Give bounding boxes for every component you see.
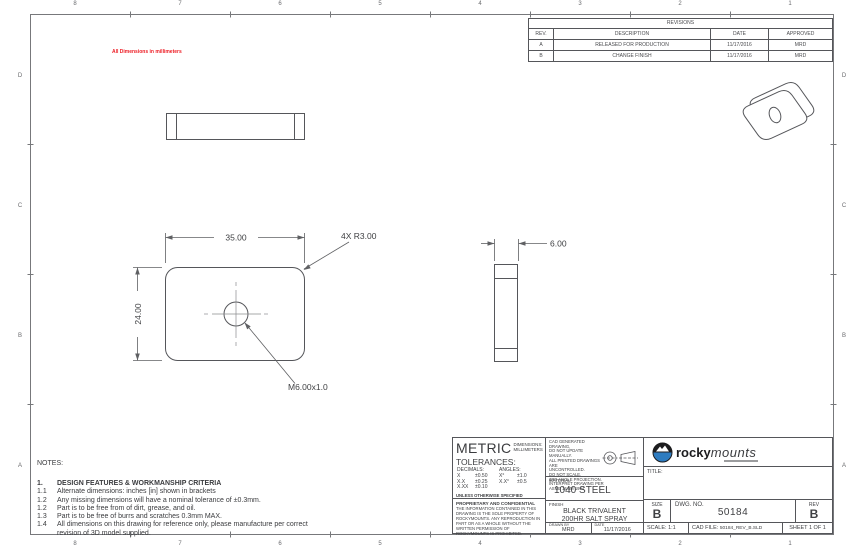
drawn-block: DRAWN BY MRD DATE 11/17/2016 [546,523,644,534]
dim-thickness: 6.00 [550,239,567,249]
top-view [167,114,305,140]
note-text: Part is to be free from of dirt, grease,… [57,505,196,513]
zone-col-label: 2 [670,541,690,551]
notes-label: NOTES: [37,460,309,467]
dimensions-units: MILLIMETERS [513,447,542,452]
revisions-header-approved: APPROVED [769,29,832,39]
tol-val: ±0.10 [475,485,499,491]
dimension-arrowheads [135,235,525,360]
third-angle-projection-icon [602,449,640,467]
dim-height: 24.00 [133,303,143,325]
note-item: 1.2 Any missing dimensions will have a n… [37,497,309,505]
revision-row: B CHANGE FINISH 11/17/2016 MRD [529,51,832,61]
notes-block: NOTES: 1. DESIGN FEATURES & WORKMANSHIP … [37,460,309,538]
revisions-title: REVISIONS [529,19,832,29]
title-label: TITLE: [644,467,832,475]
zone-row-label: C [837,203,851,213]
revision-date: 11/17/2016 [711,51,769,61]
tolerances-footnote: UNLESS OTHERWISE SPECIFIED [453,493,545,498]
revision-rev: A [529,40,554,50]
zone-row-label: D [837,73,851,83]
tol-val: ±0.5 [517,480,539,486]
zone-col-label: 8 [65,541,85,551]
revision-row: A RELEASED FOR PRODUCTION 11/17/2016 MRD [529,40,832,51]
note-item: 1.3 Part is to be free of burrs and scra… [37,513,309,521]
zone-row-label: C [13,203,27,213]
zone-col-label: 4 [470,541,490,551]
material-value: 1040 STEEL [546,483,643,496]
revision-approved: MRD [769,40,832,50]
note-number: 1.1 [37,488,57,496]
scale-value: SCALE: 1:1 [647,525,676,531]
proprietary-body: THE INFORMATION CONTAINED IN THIS DRAWIN… [453,507,545,536]
cad-file-value: 50184_REV_B.SLD [720,526,762,531]
zone-col-label: 6 [270,1,290,11]
zone-col-label: 5 [370,541,390,551]
zone-row-label: A [837,463,851,473]
revisions-header-rev: REV. [529,29,554,39]
zone-row-label: A [13,463,27,473]
side-view [495,265,518,362]
zone-col-label: 3 [570,1,590,11]
finish-value-line1: BLACK TRIVALENT [546,508,643,516]
part-views [166,82,814,361]
isometric-view [743,82,814,139]
finish-block: FINISH BLACK TRIVALENT 200HR SALT SPRAY [546,501,644,523]
units-note: All Dimensions in millimeters [112,49,182,55]
title-block: METRIC DIMENSIONS: MILLIMETERS TOLERANCE… [452,437,833,534]
note-text: Part is to be free of burrs and scratche… [57,513,222,521]
date-cell: DATE 11/17/2016 [592,523,643,534]
metric-label: METRIC [456,440,511,456]
note-item: 1.4 All dimensions on this drawing for r… [37,521,309,538]
drawn-by-value: MRD [546,527,591,533]
dim-corner-radius: 4X R3.00 [341,231,377,241]
note-item: 1.1 Alternate dimensions: inches [in] sh… [37,488,309,496]
date-value: 11/17/2016 [592,527,643,533]
revision-rev: B [529,51,554,61]
zone-row-label: B [13,333,27,343]
note-text: Any missing dimensions will have a nomin… [57,497,261,505]
dwg-no-cell: DWG. NO. 50184 [671,500,796,522]
note-text: Alternate dimensions: inches [in] shown … [57,488,216,496]
notes-section-number: 1. [37,480,57,488]
rev-cell: REV B [796,500,832,522]
size-value: B [644,508,670,520]
cad-file-label: CAD FILE: [692,525,718,531]
hole-centerlines [204,282,268,346]
note-number: 1.2 [37,505,57,513]
cad-file-cell: CAD FILE: 50184_REV_B.SLD [689,523,783,534]
brand-tagline-bar [724,460,758,462]
revision-approved: MRD [769,51,832,61]
sheet-cell: SHEET 1 OF 1 [783,523,832,534]
zone-col-label: 6 [270,541,290,551]
size-cell: SIZE B [644,500,671,522]
zone-col-label: 7 [170,1,190,11]
note-item: 1.2 Part is to be free from of dirt, gre… [37,505,309,513]
notes-section-title: DESIGN FEATURES & WORKMANSHIP CRITERIA [57,480,221,488]
zone-col-label: 3 [570,541,590,551]
zone-col-label: 5 [370,1,390,11]
zone-col-label: 8 [65,1,85,11]
tol-key: X.X° [499,480,517,486]
tolerance-block: METRIC DIMENSIONS: MILLIMETERS TOLERANCE… [453,438,546,499]
revision-description: RELEASED FOR PRODUCTION [554,40,711,50]
tol-key: X.XX [457,485,475,491]
tolerances-label: TOLERANCES: [453,457,545,467]
dim-width: 35.00 [225,233,247,243]
dimension-text-gaps [130,231,258,337]
revisions-header-desc: DESCRIPTION [554,29,711,39]
brand-block: rockymounts [644,438,832,467]
brand-name-light: mounts [711,445,757,460]
note-text: All dimensions on this drawing for refer… [57,521,309,538]
cad-note-block: CAD GENERATED DRAWING, DO NOT UPDATE MAN… [546,438,644,477]
drawn-by-cell: DRAWN BY MRD [546,523,592,534]
zone-col-label: 2 [670,1,690,11]
note-number: 1.3 [37,513,57,521]
zone-col-label: 1 [780,541,800,551]
zone-col-label: 1 [780,1,800,11]
revisions-table: REVISIONS REV. DESCRIPTION DATE APPROVED… [528,18,833,62]
revision-date: 11/17/2016 [711,40,769,50]
revisions-header-date: DATE [711,29,769,39]
title-field: TITLE: [644,467,832,500]
rockymounts-logo-icon [652,442,673,463]
zone-row-label: D [13,73,27,83]
note-number: 1.4 [37,521,57,538]
scale-row: SCALE: 1:1 CAD FILE: 50184_REV_B.SLD SHE… [644,523,832,534]
rev-value: B [796,508,832,520]
brand-name-bold: rocky [676,445,711,460]
dwg-no-value: 50184 [671,507,795,518]
sheet-value: SHEET 1 OF 1 [789,525,826,531]
revision-description: CHANGE FINISH [554,51,711,61]
rockymounts-wordmark: rockymounts [676,446,756,459]
dwg-row: SIZE B DWG. NO. 50184 REV B [644,500,832,523]
scale-cell: SCALE: 1:1 [644,523,689,534]
proprietary-block: PROPRIETARY AND CONFIDENTIAL THE INFORMA… [453,499,546,534]
finish-label: FINISH [546,501,643,507]
zone-col-label: 4 [470,1,490,11]
dim-thread-callout: M6.00x1.0 [288,382,328,392]
zone-row-label: B [837,333,851,343]
material-block: MATERIAL 1040 STEEL [546,477,644,501]
drawing-sheet: 35.00 24.00 4X R3.00 6.00 M6.00x1.0 8 7 … [0,0,860,556]
dimension-texts: 35.00 24.00 4X R3.00 6.00 M6.00x1.0 [133,231,567,392]
revisions-header-row: REV. DESCRIPTION DATE APPROVED [529,29,832,40]
notes-section-header: 1. DESIGN FEATURES & WORKMANSHIP CRITERI… [37,480,309,488]
zone-col-label: 7 [170,541,190,551]
note-number: 1.2 [37,497,57,505]
tolerances-table: DECIMALS: ANGLES: X ±0.50 X° ±1.0 X.X ±0… [453,468,545,491]
